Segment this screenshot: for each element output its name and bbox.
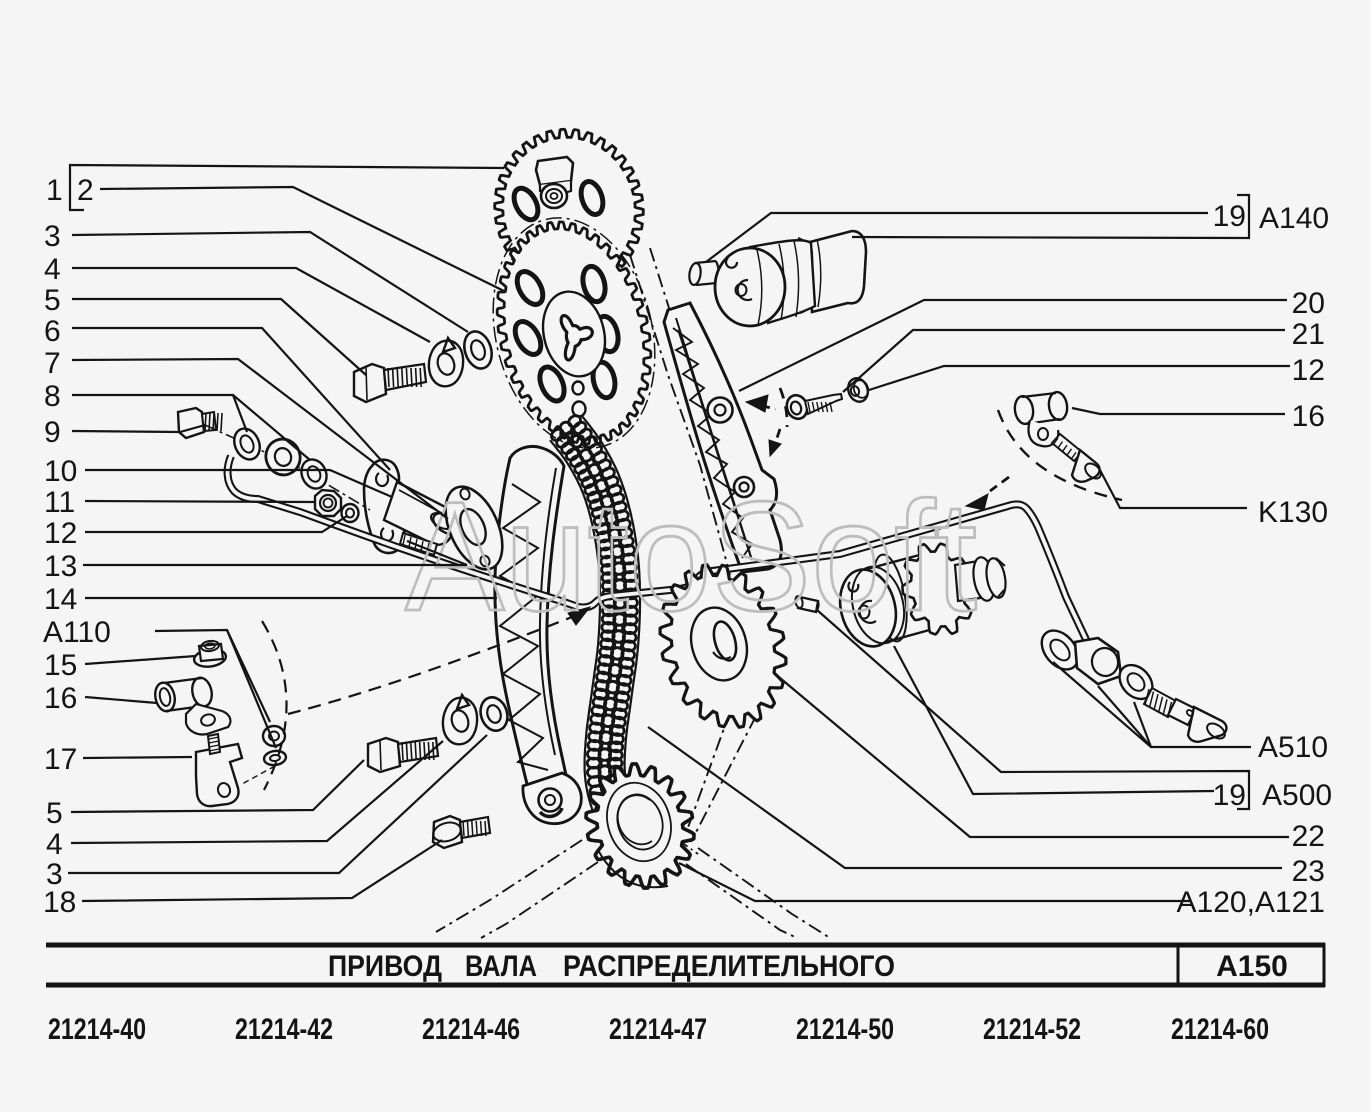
svg-text:2: 2 [77, 174, 94, 207]
svg-text:12: 12 [1292, 354, 1325, 387]
svg-text:ПРИВОД: ПРИВОД [328, 950, 442, 983]
svg-text:8: 8 [44, 380, 61, 413]
svg-text:22: 22 [1292, 820, 1325, 853]
svg-text:21214-42: 21214-42 [235, 1013, 333, 1046]
svg-text:5: 5 [46, 797, 63, 830]
svg-text:10: 10 [44, 455, 77, 488]
svg-text:K130: K130 [1258, 496, 1328, 529]
svg-text:21214-60: 21214-60 [1171, 1013, 1269, 1046]
svg-text:21214-52: 21214-52 [983, 1013, 1081, 1046]
svg-text:РАСПРЕДЕЛИТЕЛЬНОГО: РАСПРЕДЕЛИТЕЛЬНОГО [563, 950, 895, 983]
svg-text:15: 15 [44, 649, 77, 682]
svg-text:11: 11 [44, 486, 75, 519]
svg-text:9: 9 [44, 416, 61, 449]
svg-text:20: 20 [1292, 287, 1325, 320]
svg-text:21214-46: 21214-46 [422, 1013, 520, 1046]
svg-text:13: 13 [44, 550, 77, 583]
svg-text:16: 16 [1292, 400, 1325, 433]
svg-text:16: 16 [44, 682, 77, 715]
svg-text:A500: A500 [1262, 779, 1332, 812]
svg-text:19: 19 [1213, 200, 1246, 233]
svg-text:3: 3 [44, 220, 61, 253]
svg-text:21214-50: 21214-50 [796, 1013, 894, 1046]
svg-text:23: 23 [1292, 855, 1325, 888]
svg-text:1: 1 [46, 174, 63, 207]
svg-text:18: 18 [43, 886, 76, 919]
svg-text:12: 12 [44, 517, 77, 550]
svg-text:A510: A510 [1258, 731, 1328, 764]
svg-text:4: 4 [46, 828, 63, 861]
svg-text:A110: A110 [43, 616, 111, 649]
svg-text:17: 17 [44, 743, 77, 776]
svg-text:A140: A140 [1259, 202, 1329, 235]
svg-text:A120,A121: A120,A121 [1177, 886, 1325, 919]
svg-text:14: 14 [44, 583, 77, 616]
svg-text:7: 7 [44, 347, 61, 380]
svg-text:ВАЛА: ВАЛА [465, 950, 537, 983]
svg-text:19: 19 [1213, 779, 1246, 812]
svg-text:4: 4 [44, 253, 61, 286]
svg-text:AutoSoft: AutoSoft [405, 470, 977, 644]
svg-text:6: 6 [44, 315, 61, 348]
svg-text:5: 5 [44, 284, 61, 317]
svg-text:21214-40: 21214-40 [48, 1013, 146, 1046]
svg-text:21: 21 [1292, 318, 1325, 351]
svg-text:21214-47: 21214-47 [609, 1013, 707, 1046]
svg-text:A150: A150 [1216, 950, 1288, 983]
